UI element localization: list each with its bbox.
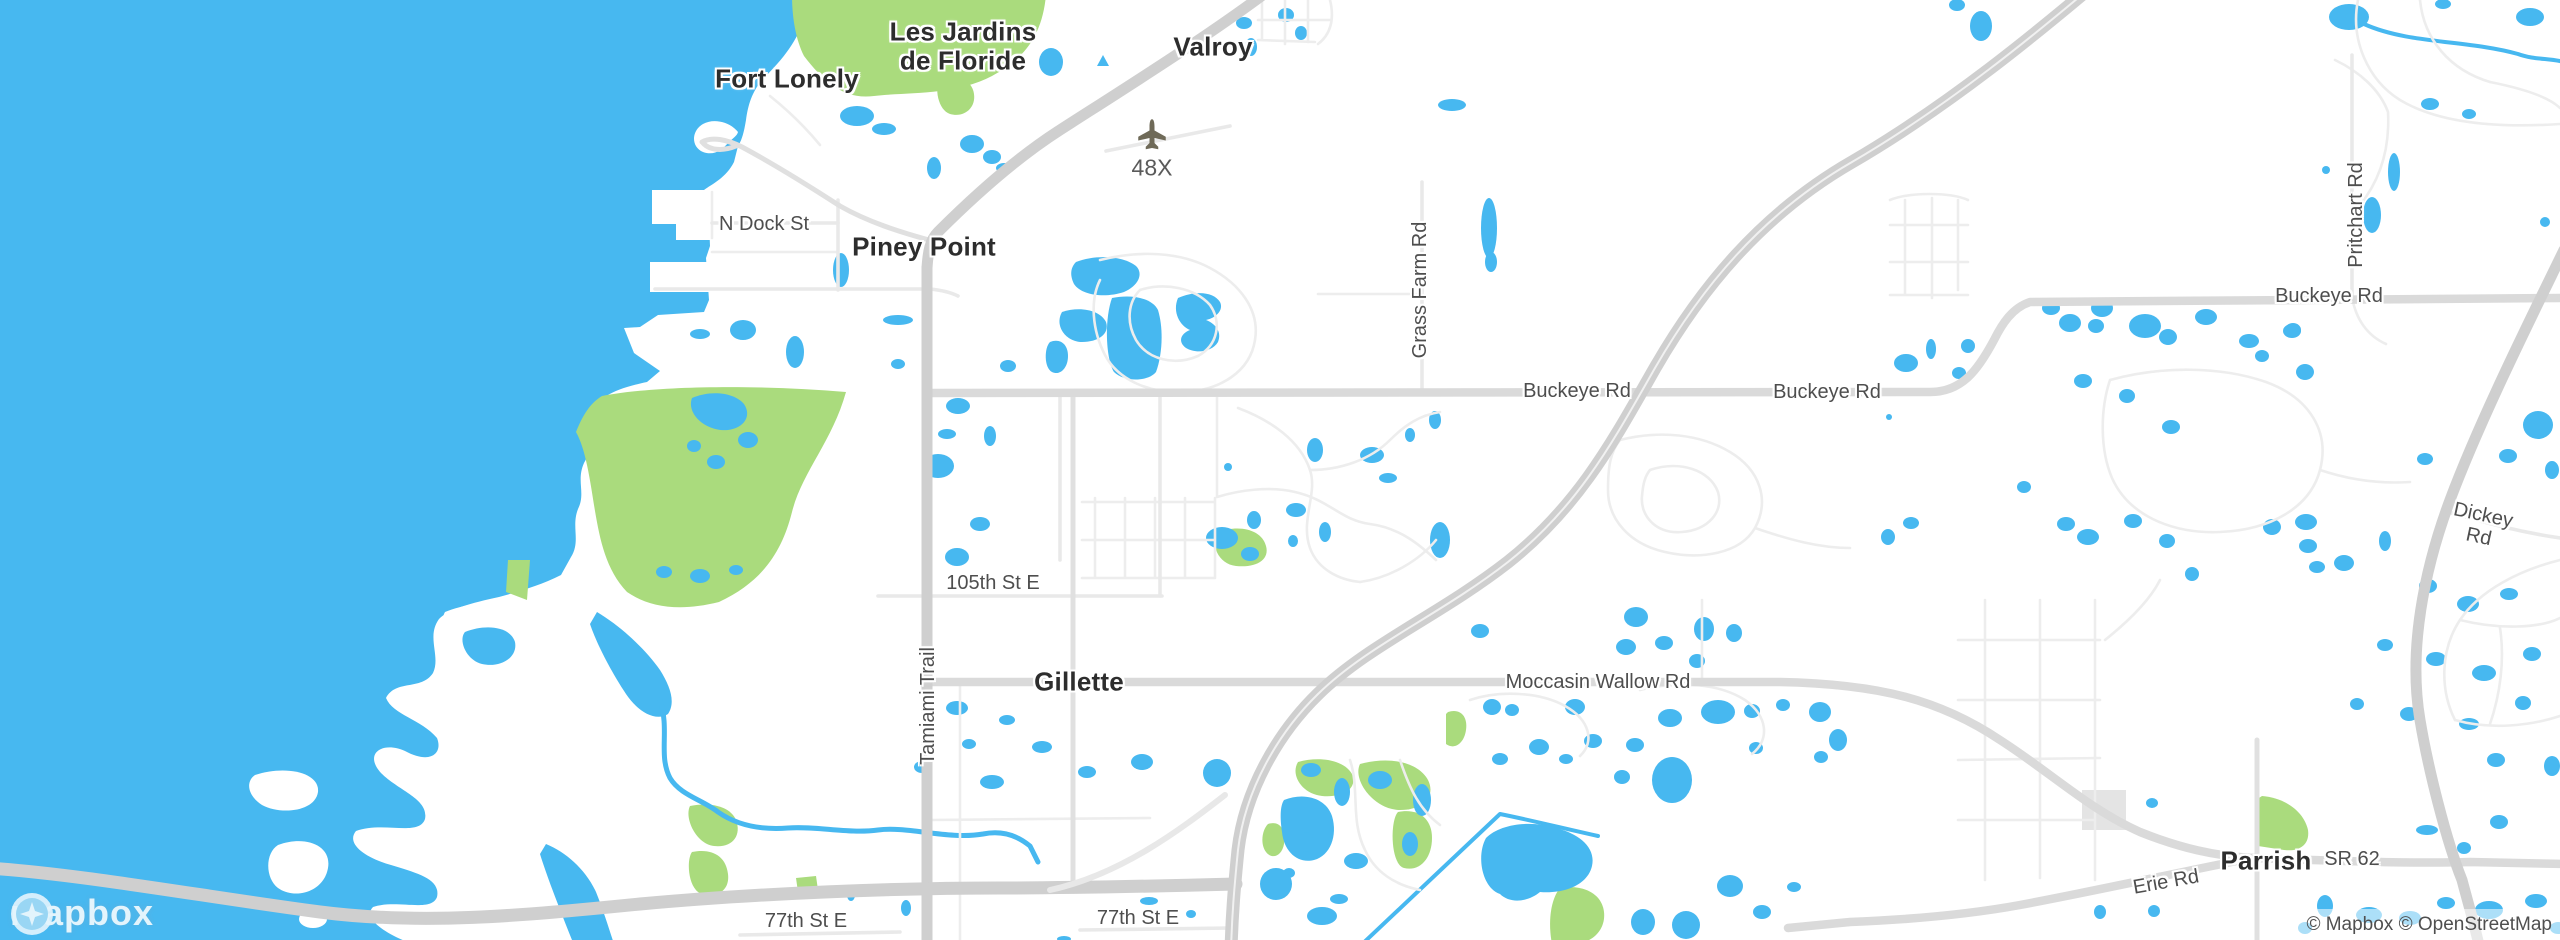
map-attribution[interactable]: © Mapbox © OpenStreetMap — [2268, 909, 2560, 940]
map-canvas[interactable]: Les Jardins de Floride Fort Lonely Valro… — [0, 0, 2560, 940]
map-svg — [0, 0, 2560, 940]
mapbox-logo-icon — [10, 892, 54, 936]
mapbox-logo[interactable]: mapbox — [10, 892, 154, 934]
